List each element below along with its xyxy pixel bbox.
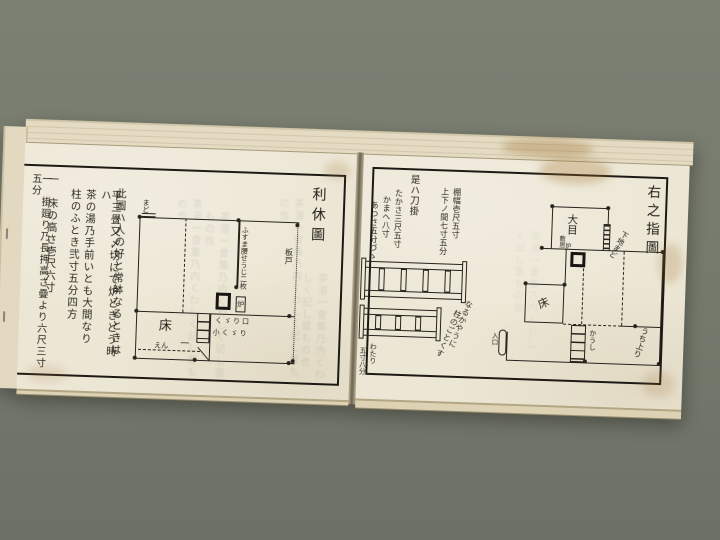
small-crawl-label: 小くゞり xyxy=(212,327,248,338)
dashed-tatami-line xyxy=(581,268,584,324)
wall-line xyxy=(209,313,212,360)
wall-line xyxy=(140,217,300,224)
crawl-door-label: くゞり口 xyxy=(215,315,251,326)
veranda-label: えん xyxy=(154,340,168,350)
junction-dot xyxy=(562,283,566,287)
junction-dot xyxy=(633,324,637,328)
junction-dot xyxy=(550,204,554,208)
wall-line xyxy=(135,358,295,365)
right-page: 右之指圖 是ハ刀掛 棚幅壱尺五寸 上下ノ間七寸五分 たかさ三尺五寸 かまへ八寸 … xyxy=(355,155,689,412)
rack-post xyxy=(395,316,401,330)
chamfer-line xyxy=(197,347,209,361)
rack-rail xyxy=(363,329,437,339)
window-mark xyxy=(142,213,156,217)
veranda-dashed-line xyxy=(138,349,200,352)
caption-span-value: 五寸八分 xyxy=(358,347,366,385)
right-floor-plan: 大目 下地まど 敷居 床 入口 かうし xyxy=(490,199,670,370)
wall-line xyxy=(608,208,610,224)
junction-dot xyxy=(234,285,238,289)
wall-line xyxy=(135,217,141,358)
lattice-panel xyxy=(570,325,586,363)
alcove-label: 床 xyxy=(159,315,173,334)
junction-dot xyxy=(193,358,197,362)
step-note: うち上り xyxy=(631,326,649,361)
caption-height: たかさ三尺五寸 xyxy=(392,189,402,259)
dimension-dotted-line xyxy=(293,225,299,361)
hearth-label: 炉 xyxy=(237,299,244,309)
sword-rack-lower xyxy=(359,305,442,342)
wall-line xyxy=(552,206,608,209)
foxing-stain xyxy=(324,161,351,180)
foxing-stain xyxy=(658,243,683,284)
alcove-room: 床 xyxy=(524,283,564,323)
foxing-stain xyxy=(642,370,675,397)
caption-thickness: あつさ五分づゝ xyxy=(368,201,378,263)
entrance-label: 入口 xyxy=(490,332,497,352)
window-hatch-strip xyxy=(603,224,611,251)
board-door-label: 板戸 xyxy=(284,248,293,278)
junction-dot xyxy=(657,362,661,366)
daime-label: 大目 xyxy=(566,214,577,240)
rack-post xyxy=(422,270,429,292)
tick-mark: 一 xyxy=(180,336,189,349)
junction-dot xyxy=(540,246,544,250)
foxing-stain xyxy=(25,365,68,382)
hearth-square xyxy=(215,293,231,311)
open-book: 利休圖 此圖ハ人の好と常躰なるときは 平三畳又〆切にて炉ときどう時ハ 茶の湯乃手… xyxy=(0,118,696,426)
rack-post xyxy=(415,316,421,330)
junction-dot xyxy=(133,356,137,360)
rikyu-floor-plan: ふすま腰せうじ二枚 板戸 炉 まど くゞり口 小くゞり 床 えん 一 xyxy=(129,213,306,371)
alcove-label: 床 xyxy=(535,293,551,312)
sword-rack-upper xyxy=(360,258,467,304)
caption-header: 是ハ刀掛 xyxy=(407,174,418,226)
junction-dot xyxy=(138,215,142,219)
dashed-tatami-line xyxy=(621,252,625,326)
photo-background: 利休圖 此圖ハ人の好と常躰なるときは 平三畳又〆切にて炉ときどう時ハ 茶の湯乃手… xyxy=(0,0,720,540)
rack-post xyxy=(444,270,451,292)
crawl-entrance-steps xyxy=(196,313,210,343)
rack-post xyxy=(378,268,385,290)
left-page: 利休圖 此圖ハ人の好と常躰なるときは 平三畳又〆切にて炉ときどう時ハ 茶の湯乃手… xyxy=(16,143,356,402)
junction-dot xyxy=(606,206,610,210)
hearth-label: 炉 xyxy=(564,243,570,255)
hearth-square xyxy=(570,252,586,268)
rack-post xyxy=(400,269,407,291)
dashed-partition-line xyxy=(182,218,186,312)
hearth-label-box: 炉 xyxy=(235,296,246,312)
binding-stitch xyxy=(6,228,8,239)
partition-label: ふすま腰せうじ二枚 xyxy=(239,226,248,290)
wall-line xyxy=(551,206,553,248)
junction-dot xyxy=(134,309,138,313)
junction-dot xyxy=(287,314,291,318)
rack-post xyxy=(375,315,381,329)
junction-dot xyxy=(295,223,299,227)
caption-span: わたり xyxy=(368,343,376,369)
lattice-label: かうし xyxy=(588,330,596,356)
wall-line xyxy=(506,332,508,360)
caption-gap: 上下ノ間七寸五分 xyxy=(438,187,449,267)
binding-stitch xyxy=(3,311,5,322)
